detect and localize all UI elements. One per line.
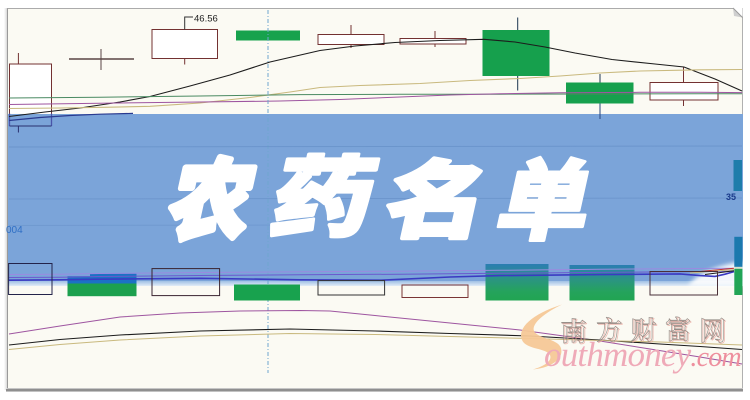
svg-text:35: 35 [726,192,736,202]
svg-text:46.56: 46.56 [194,14,218,25]
svg-text:004: 004 [6,225,23,236]
svg-text:outhmoney.com: outhmoney.com [544,335,741,374]
